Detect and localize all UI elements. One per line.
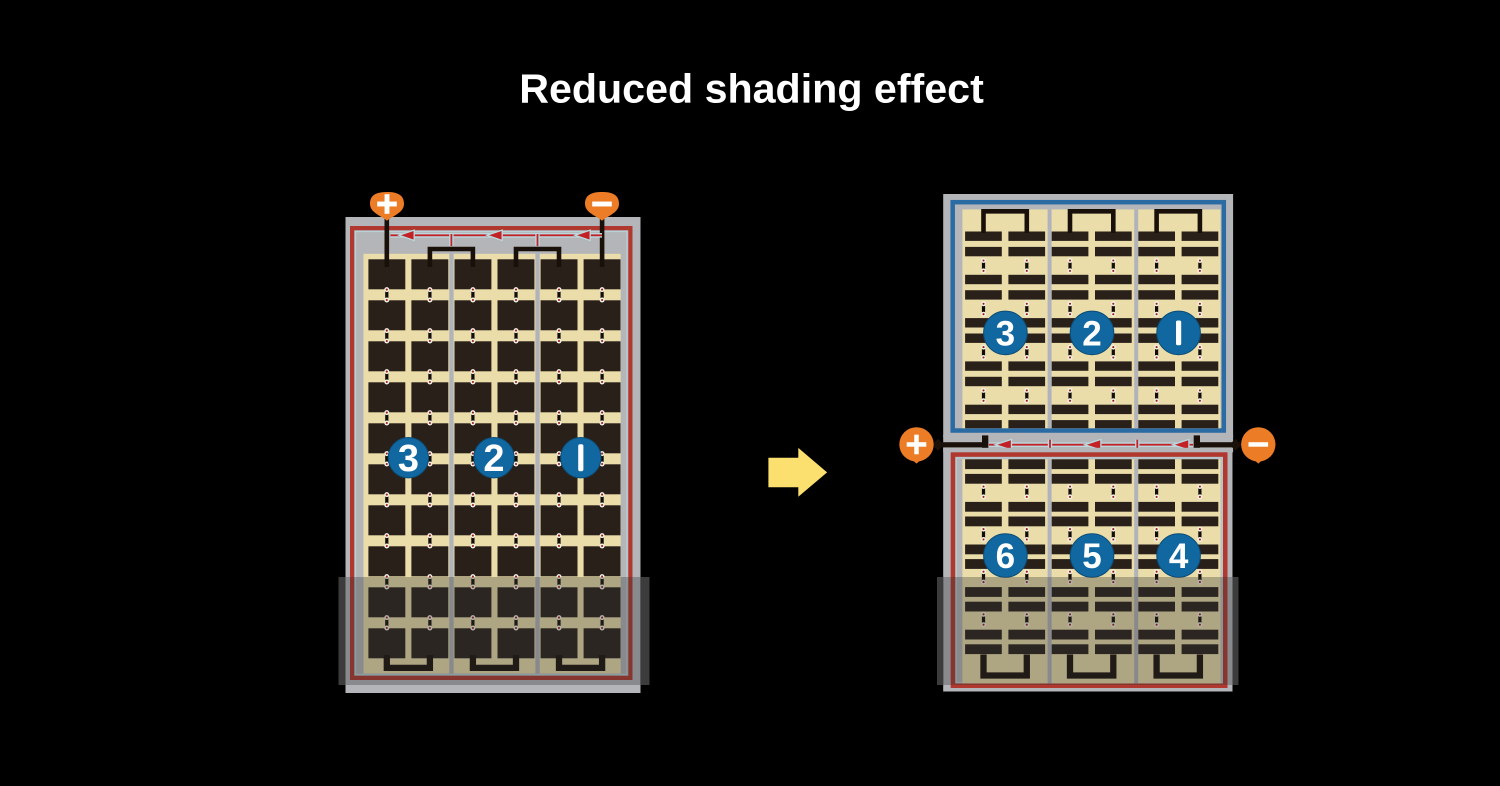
- svg-text:Reduced shading effect: Reduced shading effect: [519, 66, 984, 112]
- svg-text:3: 3: [996, 314, 1015, 353]
- svg-text:2: 2: [1082, 314, 1101, 353]
- svg-text:3: 3: [398, 438, 419, 480]
- svg-text:4: 4: [1169, 537, 1189, 576]
- svg-text:2: 2: [483, 438, 504, 480]
- svg-text:5: 5: [1082, 537, 1101, 576]
- svg-text:6: 6: [996, 537, 1015, 576]
